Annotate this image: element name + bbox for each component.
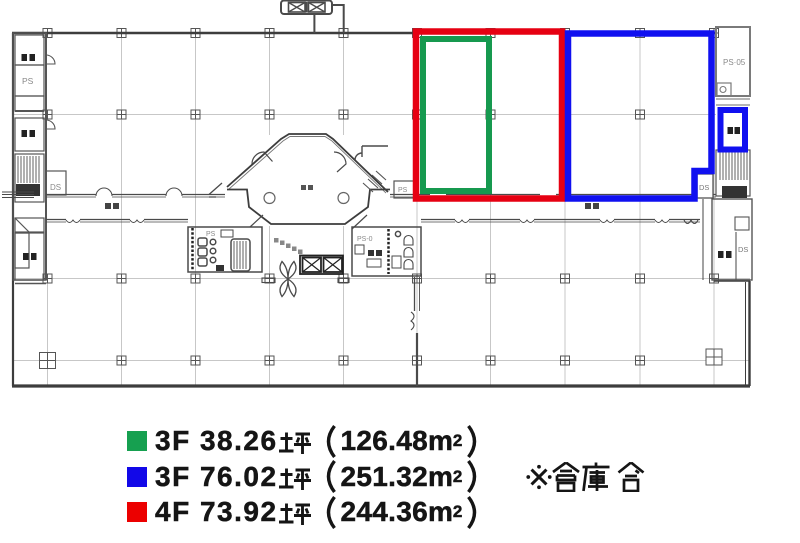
svg-text:PS: PS (398, 187, 408, 194)
svg-text:DS: DS (738, 245, 748, 254)
svg-text:PS: PS (206, 231, 216, 238)
svg-text:PS: PS (22, 76, 34, 86)
svg-text:DS: DS (699, 183, 709, 192)
svg-text:DS: DS (50, 183, 61, 192)
svg-text:PS·05: PS·05 (723, 58, 746, 67)
svg-text:PS-0: PS-0 (357, 236, 373, 243)
